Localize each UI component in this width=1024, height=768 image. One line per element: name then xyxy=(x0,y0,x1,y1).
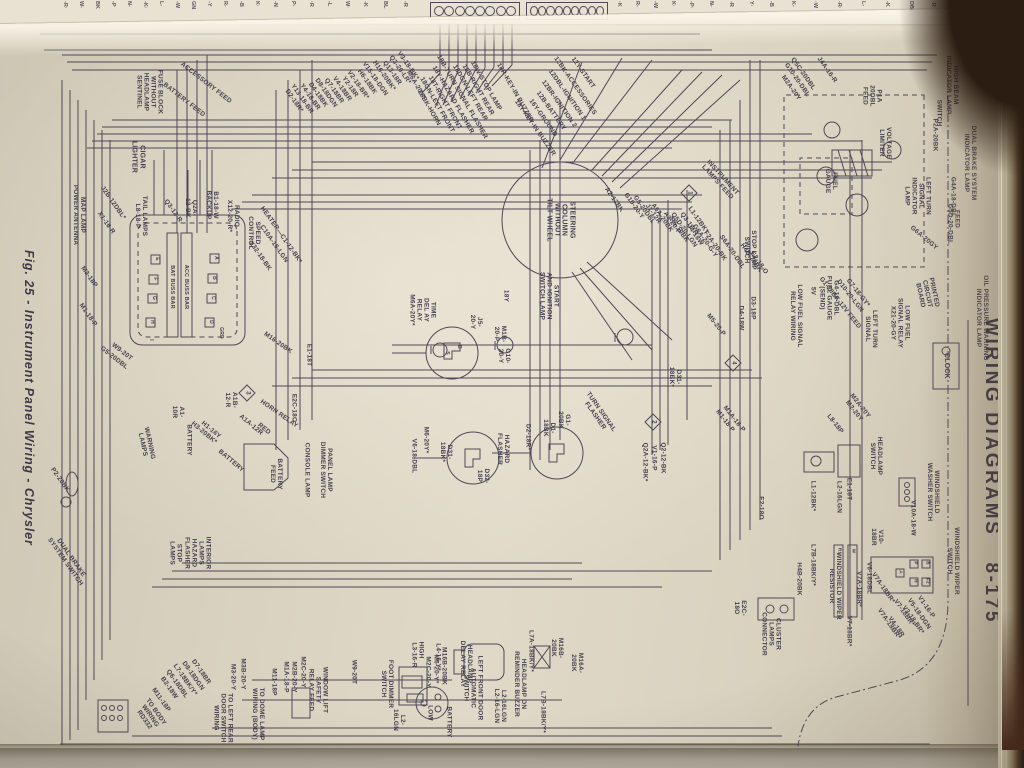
diagram-label: A xyxy=(898,570,903,573)
edge-text-fragment: W· xyxy=(344,1,350,8)
diagram-label: ACC BUSS BAR xyxy=(183,265,189,310)
diagram-label: M2B-20-Y xyxy=(290,661,297,692)
diagram-label: M6-20Y* xyxy=(422,427,429,454)
edge-text-fragment: N- xyxy=(708,1,714,7)
diagram-label: BATTERY xyxy=(445,706,452,737)
diagram-label: 18T-RIGHT FRONT xyxy=(427,75,463,131)
diagram-label: BATTERY xyxy=(217,448,246,474)
diagram-label: TO BODY WIRING RD332 xyxy=(126,689,173,744)
diagram-label: L2-16LGN L2-16-LGN xyxy=(493,689,507,724)
diagram-label: M1A-18-P xyxy=(722,405,747,434)
diagram-label: M2A-20Y xyxy=(848,392,871,419)
diagram-label: H3-20BK* xyxy=(190,420,219,446)
diagram-label: L4-16-Y* xyxy=(434,643,441,671)
edge-text-fragment: ·W xyxy=(812,1,818,8)
diagram-label: C10A-16-LGN xyxy=(258,224,289,264)
diagram-label: 18Y-HAZARD FLASHER xyxy=(431,65,476,135)
diagram-label: F2A-20-BK xyxy=(702,230,728,263)
diagram-label: HEATER—C1-12-BK* xyxy=(259,205,304,265)
diagram-label: 4 xyxy=(730,361,737,365)
diagram-label: A1- 10R xyxy=(171,406,185,419)
diagram-label: TURN SIGNAL FLASHER xyxy=(579,391,617,437)
edge-text-fragment: -K xyxy=(362,1,368,7)
edge-text-fragment: GN xyxy=(190,1,196,9)
diagram-label: HIGH xyxy=(417,641,424,658)
diagram-label: Q2A-12-BK* xyxy=(641,443,648,482)
diagram-label: L7B-18BK/Y* xyxy=(809,544,816,586)
edge-text-fragment: -P xyxy=(110,1,116,7)
diagram-label: BATTERY xyxy=(185,424,192,455)
diagram-label: J4A-16-R xyxy=(816,56,839,84)
diagram-label: Q3-20-LR* xyxy=(388,54,413,85)
connector-pin xyxy=(475,6,485,16)
diagram-label: M1A-18-P xyxy=(282,661,289,692)
edge-text-fragment: -K· xyxy=(142,1,148,9)
diagram-label: C xyxy=(209,296,215,300)
diagram-label: GRD xyxy=(217,327,223,339)
diagram-label: D4-18BK xyxy=(307,81,329,108)
figure-caption: Fig. 25 - Instrument Panel Wiring - Chry… xyxy=(22,250,36,546)
diagram-label: Y4-18-BR xyxy=(298,82,321,111)
diagram-label: STEERING COLUMN WITHOUT TILT WHEEL xyxy=(545,198,576,241)
diagram-label: 18W-STOP LAMP xyxy=(469,60,503,112)
diagram-label: E2-18-O xyxy=(749,250,770,275)
diagram-label: L1-12BK* xyxy=(686,205,709,234)
diagram-label: G1-20BK-12V FEED xyxy=(818,276,863,330)
edge-text-fragment: K- xyxy=(790,1,796,7)
diagram-label: R1 xyxy=(837,548,842,554)
diagram-label: HAZARD FLASHER xyxy=(496,433,510,465)
edge-text-fragment: -L xyxy=(326,1,332,6)
diagram-label: G5-20DBL xyxy=(99,345,129,371)
edge-text-fragment: ·R xyxy=(308,1,314,7)
diagram-label: FOOT DIMMER SWITCH xyxy=(380,660,394,708)
diagram-label: G10- 20-Y xyxy=(497,348,511,363)
diagram-label: G7-18-GY* xyxy=(845,277,872,308)
diagram-label: HEADLAMP ON REMINDER BUZZER xyxy=(513,651,527,717)
diagram-label: P2-20BK xyxy=(49,466,71,493)
diagram-label: D31- 18BK* xyxy=(668,367,682,387)
diagram-label: W xyxy=(851,549,856,553)
edge-text-fragment: N- xyxy=(126,1,132,7)
diagram-label: SPEED CONTROL xyxy=(247,216,261,250)
diagram-label: Q3-12-R xyxy=(679,211,700,237)
diagram-label: PANEL LAMP DIMMER SWITCH xyxy=(319,442,333,498)
edge-text-fragment: BK xyxy=(94,1,100,9)
edge-text-fragment: BL xyxy=(382,1,388,8)
diagram-label: 18Y xyxy=(502,290,509,302)
diagram-label: M3-18P xyxy=(79,265,99,289)
diagram-label: E1-18T xyxy=(305,344,312,367)
diagram-label: E xyxy=(153,257,159,261)
diagram-label: CLUSTER LAMPS CONNECTOR xyxy=(760,612,781,656)
diagram-label: M6-20-Y* xyxy=(432,654,439,683)
diagram-label: 2 xyxy=(650,420,657,424)
diagram-label: D31- 18BK* xyxy=(439,442,453,462)
connector-pin xyxy=(444,6,454,16)
diagram-label: A1B- 12-R xyxy=(224,392,238,408)
diagram-label: M16-20BK xyxy=(262,331,293,356)
diagram-label: M2A-20Y xyxy=(780,74,802,102)
diagram-label: 12B-BATTERY xyxy=(535,90,567,132)
diagram-label: L1-12BK* xyxy=(809,481,816,512)
diagram-label: 18BK-HORN xyxy=(416,89,442,127)
diagram-label: B1-18-W BACKUP xyxy=(205,190,219,219)
diagram-label: TIME DEL AY RELAY M6A-20Y* xyxy=(408,294,437,326)
edge-text-fragment: -Y xyxy=(206,1,212,7)
diagram-label: DUAL BRAKE SYSTEM SWITCH xyxy=(46,533,90,588)
diagram-label: Q2A- 12-BK xyxy=(184,198,198,218)
diagram-label: A6A-20BK xyxy=(649,202,674,233)
edge-text-fragment: -R· xyxy=(836,1,842,9)
diagram-label: CONSOLE LAMP xyxy=(303,443,310,498)
diagram-label: V4-18R xyxy=(886,615,905,638)
edge-text-fragment: ·K xyxy=(616,1,622,7)
diagram-label: A3-20-P xyxy=(662,210,683,235)
diagram-label: S xyxy=(443,351,449,355)
diagram-label: D4-18W xyxy=(737,305,744,330)
connector-pin xyxy=(434,6,444,16)
diagram-label: G6A-20-G-Y xyxy=(691,223,719,259)
diagram-label: STOP LAMP SWITCH xyxy=(743,230,757,269)
diagram-label: LOW FUEL SIGNAL RELAY X21-20-GY xyxy=(889,298,910,348)
connector-pin xyxy=(506,6,516,16)
diagram-label: G1- 20BK xyxy=(557,411,571,428)
edge-text-fragment: K· xyxy=(670,1,676,7)
diagram-label: V15-18-DGN xyxy=(361,61,390,98)
diagram-label: LOW xyxy=(426,705,433,721)
diagram-label: W9-20T xyxy=(350,660,357,684)
diagram-label: H4B-20BK xyxy=(738,242,763,273)
table-surface xyxy=(0,748,1024,768)
diagram-label: E2C- 18O xyxy=(733,600,747,616)
diagram-label: BAT BUSS BAR xyxy=(169,265,175,309)
diagram-label: M16B-20BK xyxy=(440,647,447,685)
diagram-label: D1- 18BK xyxy=(542,419,556,436)
edge-text-fragment: -W xyxy=(652,1,658,8)
diagram-label: G4-18-DBL FUEL GAUGE (SEND) xyxy=(818,276,839,321)
diagram-label: HORN RELAY xyxy=(259,398,299,429)
diagram-label: W9-20T xyxy=(110,342,134,363)
diagram-label: H xyxy=(148,320,154,324)
diagram-label: M2C-20-Y xyxy=(424,656,431,687)
diagram-label: Y13-18-BR xyxy=(289,83,315,115)
diagram-label: V1-16-P xyxy=(650,445,657,470)
diagram-label: 5V xyxy=(809,287,816,295)
diagram-label: H4B-20BK xyxy=(795,562,802,595)
diagram-label: D7-18BR xyxy=(190,658,212,685)
diagram-label: J2B-12DBL* xyxy=(99,185,127,221)
diagram-label: E2C-18O xyxy=(290,394,297,423)
diagram-label: R6-10BK xyxy=(668,216,690,243)
connector-pin xyxy=(485,6,495,16)
connector-pin xyxy=(455,6,465,16)
diagram-label: H xyxy=(913,579,918,582)
diagram-label: V7A-18BR* xyxy=(855,571,862,607)
connector-pin xyxy=(530,6,538,16)
diagram-label: Q5D-20-LGN xyxy=(669,211,698,248)
diagram-label: V7A-18BR* xyxy=(876,607,902,640)
diagram-label: WARNING LAMPS xyxy=(136,426,157,461)
diagram-label: G xyxy=(150,296,156,300)
edge-text-fragment: -W xyxy=(174,1,180,8)
diagram-label: WINDSHIELD WIPER RESISTOR xyxy=(828,552,842,619)
diagram-label: L2-16LGN xyxy=(835,481,842,513)
edge-text-fragment: -R xyxy=(402,1,408,7)
diagram-label: V10- 18BR xyxy=(870,528,884,545)
edge-text-fragment: R- xyxy=(634,1,640,7)
diagram-label: TAIL LAMPS L8-18-P xyxy=(134,196,148,236)
diagram-label: 18GN-LEFT FRONT xyxy=(418,76,455,134)
diagram-label: D32- 18P xyxy=(476,469,490,484)
diagram-label: A xyxy=(212,256,218,260)
diagram-label: M1-18-P xyxy=(714,408,736,433)
diagram-label: 3 xyxy=(244,391,251,395)
diagram-label: V10A-18-W xyxy=(909,500,916,536)
diagram-label: A1A-12R xyxy=(238,413,264,437)
diagram-label: V7A-18BR* xyxy=(870,571,896,604)
diagram-label: 12Y-START xyxy=(570,56,597,90)
diagram-label: CIGAR LIGHTER xyxy=(130,141,145,173)
diagram-label: M1B- 20-P xyxy=(493,326,507,343)
diagram-label: INTERIOR LAMPS HAZARD FLASHER STOP LAMPS xyxy=(169,537,212,570)
diagram-label: D10-20-LGN xyxy=(835,278,865,313)
diagram-label: V2-18-BR* xyxy=(346,69,371,100)
diagram-label: H1-16Y xyxy=(200,420,222,440)
diagram-label: D3-18P xyxy=(749,296,756,319)
diagram-label: J5- 20-Y xyxy=(469,315,483,330)
diagram-label: J1-12R xyxy=(644,203,663,226)
diagram-label: L7B-18BK/Y* xyxy=(539,691,546,733)
diagram-label: Q6-18DBL xyxy=(165,668,190,699)
diagram-label: RED xyxy=(256,422,272,437)
diagram-label: INSTRUMENT LAMPS FEED xyxy=(700,159,740,202)
diagram-label: V6-18-DBL xyxy=(410,439,417,474)
edge-text-fragment: -R· xyxy=(62,1,68,9)
diagram-label: 18R-KEY-IN BUZZER xyxy=(495,62,535,124)
diagram-label: Y2-18R xyxy=(340,75,359,98)
diagram-label: M16A- 20BK xyxy=(570,653,584,674)
background-corner-top-right xyxy=(854,0,1024,240)
diagram-label: 18B-RIGHT REAR xyxy=(461,63,496,116)
diagram-label: L3-16-R xyxy=(410,642,417,667)
diagram-label: LEFT FRONT DOOR AUTOMATIC SWITCH xyxy=(462,656,483,721)
connector-pin xyxy=(465,6,475,16)
diagram-label: Q7-18BR xyxy=(323,77,345,105)
connector-pin xyxy=(496,6,506,16)
diagram-label: LOW FUEL SIGNAL RELAY WIRING xyxy=(789,284,803,347)
diagram-label: G10-20-Y xyxy=(623,192,646,220)
edge-text-fragment: -B xyxy=(768,1,774,7)
edge-text-fragment: -R xyxy=(728,1,734,7)
diagram-label: L8-18P xyxy=(825,413,844,435)
diagram-label: M11-18P xyxy=(270,668,277,695)
diagram-label: START AND IGNITION SWITCH LAMP xyxy=(538,272,559,320)
diagram-label: M3B-20-Y xyxy=(239,658,246,689)
diagram-label: L7-18BK/Y* xyxy=(171,663,198,697)
diagram-label: V6-18DBL xyxy=(865,562,872,594)
diagram-label: 18DGN-LEFT REAR xyxy=(451,64,489,122)
diagram-label: HEADLAMP DELAY RELAY xyxy=(459,641,473,688)
edge-text-fragment: P- xyxy=(290,1,296,7)
diagram-label: M2C-20-Y xyxy=(299,656,306,687)
diagram-label: Q5C-20DBL xyxy=(789,56,817,91)
diagram-label: D xyxy=(207,320,213,324)
diagram-label: 16Y-GROUND xyxy=(527,98,558,138)
diagram-label: M3-20-Y xyxy=(229,664,236,690)
diagram-label: V7-18BR* xyxy=(845,616,852,647)
diagram-label: H6-18BK xyxy=(356,68,378,95)
diagram-label: G10-20-DBL xyxy=(783,62,811,98)
diagram-label: FUSE BLOCK WITHOUT HEADLAMP SENTINEL xyxy=(135,70,164,114)
diagram-label: E2-18O xyxy=(757,496,764,520)
diagram-label: RADIO X12-20-R* xyxy=(226,200,240,232)
background-corner-bottom-right xyxy=(1002,610,1024,750)
diagram-label: LEFT TURN SIGNAL xyxy=(864,310,878,348)
diagram-label: ACCESSORY FEED xyxy=(179,61,233,105)
edge-text-fragment: K· xyxy=(254,1,260,7)
diagram-label: V3-18-BK* xyxy=(396,50,421,81)
diagram-label: J4-18W xyxy=(685,223,705,247)
diagram-label: 1 xyxy=(686,191,693,195)
diagram-label: X1-16-R xyxy=(96,210,117,235)
diagram-label: MAP LAMP POWER ANTENNA xyxy=(72,185,86,246)
diagram-label: E1-18T xyxy=(845,478,852,501)
diagram-label: D8-18DGN xyxy=(313,77,338,109)
diagram-label: Q2-12-BK xyxy=(659,442,666,473)
diagram-label: D2-18R* xyxy=(284,88,305,114)
diagram-label: P xyxy=(913,561,918,564)
diagram-label: TO DOME LAMP WIRING (BODY) xyxy=(251,688,265,741)
edge-text-fragment: L- xyxy=(158,1,164,6)
diagram-label: V7-18BR* xyxy=(892,598,916,627)
diagram-label: FUEL GAUGE xyxy=(824,169,838,194)
edge-text-fragment: W- xyxy=(78,1,84,8)
diagram-label: D8-18DGN xyxy=(180,660,205,692)
diagram-label: B xyxy=(455,345,461,349)
diagram-label: M16B- 20BK xyxy=(550,638,564,659)
diagram-label: M11-18P xyxy=(150,687,172,714)
edge-text-fragment: R- xyxy=(222,1,228,7)
diagram-label: BATTERY FEED xyxy=(162,81,207,118)
diagram-label: B xyxy=(210,276,216,280)
diagram-label: TO LEFT REAR DOOR SWITCH WIRING xyxy=(212,693,233,743)
diagram-label: L2- 16LGN xyxy=(392,709,406,731)
diagram-label: M1-18-P xyxy=(78,302,99,328)
diagram-label: 18Y-KEY-IN BUZZER xyxy=(513,99,557,158)
diagram-label: B2-18W xyxy=(159,676,179,701)
edge-text-fragment: -B xyxy=(238,1,244,7)
diagram-label: D2-18R* xyxy=(524,424,531,450)
diagram-label: HEADLAMP SWITCH xyxy=(869,437,883,475)
diagram-label: 12BK-ACCESSORIES xyxy=(552,56,598,117)
diagram-label: I xyxy=(147,339,153,341)
diagram-label: 18B-TURN SIGNAL FLASHER xyxy=(435,54,489,140)
diagram-label: S6A-20-DBL xyxy=(718,234,747,271)
diagram-label: L7A-18BK/Y* xyxy=(527,630,534,672)
diagram-label: G5-20DBL xyxy=(632,194,657,225)
diagram-label: V4-18BR xyxy=(331,75,353,102)
diagram-label: Q3-12-R xyxy=(163,198,184,224)
diagram-label: X32-18-BK xyxy=(247,240,273,272)
diagram-label: 12DBL-IGNITION 1 xyxy=(547,68,587,121)
diagram-label: M5-20-P xyxy=(705,312,727,337)
edge-text-fragment: -P· xyxy=(688,1,694,8)
edge-text-fragment: Y· xyxy=(748,1,754,7)
diagram-label: H16-20BK* xyxy=(371,60,397,93)
book-photo: HIGH BEAM INDICATOR LAMPSWITCHDUAL BRAKE… xyxy=(0,0,1024,768)
diagram-label: M2-20Y xyxy=(844,399,864,422)
diagram-label: A2-12BK xyxy=(603,186,625,213)
diagram-label: BATTERY FEED xyxy=(269,458,283,489)
edge-text-fragment: -N xyxy=(272,1,278,7)
diagram-label: M6A-20Y* xyxy=(405,70,427,101)
diagram-label: 12BR-IGNITION 2 xyxy=(540,79,578,129)
diagram-label: Q13-18R xyxy=(381,60,403,87)
diagram-label: WINDOW LIFT SAFETY RELAY FEED xyxy=(307,667,328,713)
diagram-label: F xyxy=(151,277,157,280)
